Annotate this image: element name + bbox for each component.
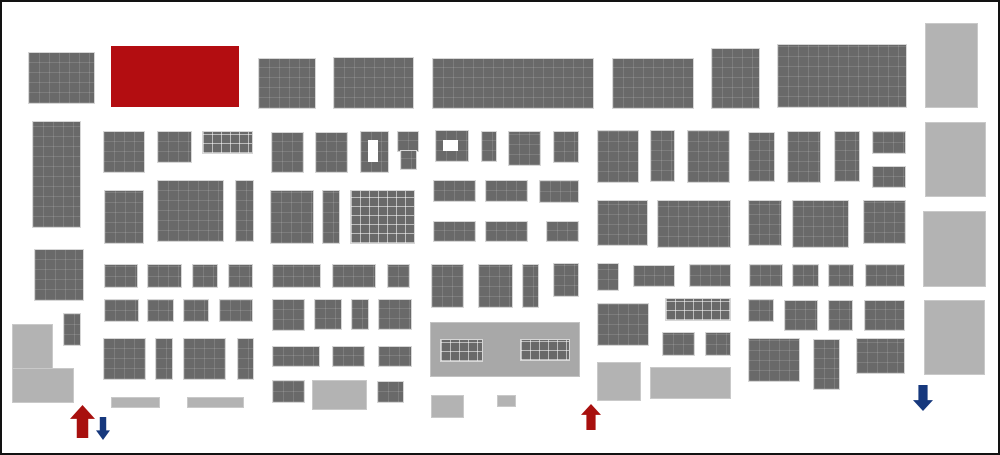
- booth-block[interactable]: [835, 132, 859, 181]
- booth-block[interactable]: [873, 167, 905, 187]
- booth-block[interactable]: [184, 300, 208, 321]
- entrance-arrow-up-icon: [581, 404, 601, 430]
- booth-block[interactable]: [658, 201, 730, 247]
- booth-block[interactable]: [398, 132, 418, 151]
- facility-block: [13, 369, 73, 402]
- booth-block[interactable]: [688, 131, 729, 182]
- booth-block[interactable]: [64, 314, 80, 345]
- booth-block[interactable]: [273, 347, 319, 366]
- highlighted-booth[interactable]: [111, 46, 239, 107]
- booth-block[interactable]: [486, 181, 527, 201]
- booth-block[interactable]: [873, 132, 905, 153]
- booth-block[interactable]: [29, 53, 94, 103]
- booth-block[interactable]: [148, 300, 173, 321]
- facility-block: [188, 398, 243, 407]
- booth-block[interactable]: [785, 301, 817, 330]
- booth-block[interactable]: [378, 382, 403, 402]
- facility-block: [432, 396, 463, 417]
- facility-block: [112, 398, 159, 407]
- facility-block: [926, 123, 985, 196]
- booth-block[interactable]: [712, 49, 759, 108]
- booth-block[interactable]: [793, 201, 848, 247]
- booth-block[interactable]: [105, 265, 137, 287]
- booth-block[interactable]: [379, 347, 411, 366]
- booth-block[interactable]: [351, 191, 414, 243]
- facility-block: [313, 381, 366, 409]
- booth-block[interactable]: [193, 265, 217, 287]
- booth-block[interactable]: [829, 265, 853, 286]
- booth-block[interactable]: [388, 265, 409, 287]
- booth-block[interactable]: [104, 339, 145, 379]
- floor-plan: [0, 0, 1000, 455]
- booth-block[interactable]: [229, 265, 252, 287]
- booth-block[interactable]: [433, 59, 593, 108]
- facility-block: [651, 368, 730, 398]
- booth-block[interactable]: [486, 222, 527, 241]
- booth-block[interactable]: [814, 340, 839, 389]
- booth-block[interactable]: [598, 264, 618, 290]
- entrance-arrow-up-icon: [70, 405, 95, 438]
- booth-block[interactable]: [236, 181, 253, 241]
- booth-block[interactable]: [441, 340, 482, 361]
- booth-block[interactable]: [829, 301, 852, 330]
- booth-block[interactable]: [706, 333, 730, 355]
- facility-block: [925, 301, 984, 374]
- booth-block[interactable]: [333, 265, 375, 287]
- booth-block[interactable]: [749, 300, 773, 321]
- facility-block: [598, 363, 640, 400]
- booth-block[interactable]: [598, 304, 648, 345]
- booth-block[interactable]: [866, 265, 904, 286]
- booth-block[interactable]: [663, 333, 694, 355]
- booth-block[interactable]: [750, 265, 782, 286]
- booth-block[interactable]: [749, 339, 799, 381]
- booth-block[interactable]: [333, 347, 364, 366]
- booth-block[interactable]: [273, 381, 304, 402]
- booth-block[interactable]: [598, 131, 638, 182]
- facility-block: [498, 396, 515, 406]
- booth-block[interactable]: [105, 300, 138, 321]
- booth-block[interactable]: [554, 264, 578, 296]
- booth-block[interactable]: [352, 300, 368, 329]
- exit-arrow-down-icon: [913, 385, 933, 411]
- booth-block[interactable]: [865, 301, 904, 330]
- booth-block[interactable]: [316, 133, 347, 172]
- booth-block[interactable]: [690, 265, 730, 286]
- booth-block[interactable]: [156, 339, 172, 379]
- booth-block[interactable]: [334, 58, 413, 108]
- booth-block[interactable]: [778, 45, 906, 107]
- booth-block[interactable]: [482, 132, 496, 161]
- booth-block[interactable]: [203, 132, 252, 153]
- booth-block[interactable]: [793, 265, 818, 286]
- booth-block[interactable]: [273, 265, 320, 287]
- booth-block[interactable]: [666, 299, 730, 320]
- booth-block[interactable]: [434, 222, 475, 241]
- facility-block: [924, 212, 985, 286]
- booth-block[interactable]: [554, 132, 578, 162]
- booth-block[interactable]: [547, 222, 578, 241]
- booth-block[interactable]: [259, 59, 315, 108]
- booth-block[interactable]: [315, 300, 341, 329]
- booth-block[interactable]: [271, 191, 313, 243]
- booth-block[interactable]: [432, 265, 463, 307]
- booth-block[interactable]: [651, 131, 674, 181]
- booth-block[interactable]: [523, 265, 538, 307]
- booth-block[interactable]: [864, 201, 905, 243]
- booth-block[interactable]: [479, 265, 512, 307]
- booth-block[interactable]: [521, 340, 569, 360]
- booth-block[interactable]: [540, 181, 578, 202]
- booth-block[interactable]: [273, 300, 304, 330]
- facility-block: [926, 24, 977, 107]
- booth-block[interactable]: [323, 191, 339, 243]
- booth-block[interactable]: [158, 181, 223, 241]
- booth-block[interactable]: [272, 133, 303, 172]
- booth-block[interactable]: [184, 339, 225, 379]
- booth-block[interactable]: [749, 201, 781, 245]
- booth-block[interactable]: [788, 132, 820, 182]
- exit-arrow-down-icon: [96, 417, 110, 440]
- booth-block[interactable]: [158, 132, 191, 162]
- booth-block[interactable]: [857, 339, 904, 373]
- booth-cutout: [368, 140, 378, 162]
- booth-block[interactable]: [634, 266, 674, 286]
- booth-cutout: [443, 140, 458, 151]
- facility-block: [13, 325, 52, 369]
- booth-block[interactable]: [220, 300, 252, 321]
- booth-block[interactable]: [238, 339, 253, 379]
- booth-block[interactable]: [33, 122, 80, 227]
- booth-block[interactable]: [434, 181, 475, 201]
- booth-block[interactable]: [401, 151, 416, 169]
- booth-block[interactable]: [148, 265, 181, 287]
- booth-block[interactable]: [104, 132, 144, 172]
- booth-block[interactable]: [379, 300, 411, 329]
- booth-block[interactable]: [509, 132, 540, 165]
- booth-block[interactable]: [105, 191, 143, 243]
- booth-block[interactable]: [749, 133, 774, 181]
- booth-block[interactable]: [598, 201, 647, 245]
- booth-block[interactable]: [613, 59, 693, 108]
- booth-block[interactable]: [35, 250, 83, 300]
